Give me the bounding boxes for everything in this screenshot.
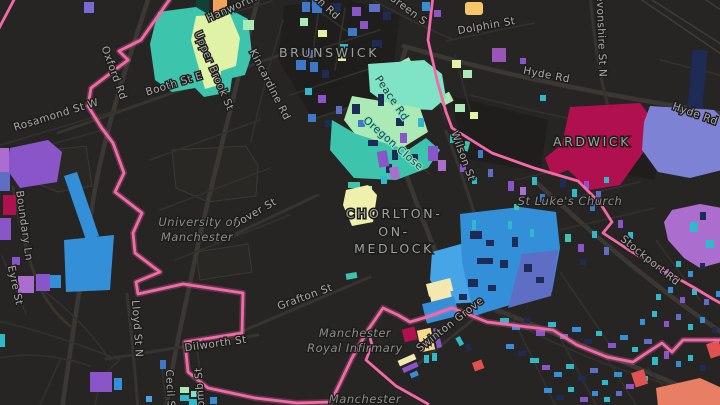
poi-label: St Luke's Church — [518, 194, 623, 208]
place-label: ARDWICK — [553, 134, 631, 149]
map-canvas[interactable]: Oxford RdBooth St ERosamond St WUpper Br… — [0, 0, 720, 405]
poi-label: University of — [158, 215, 239, 229]
place-label: ON- — [378, 224, 410, 239]
poi-label: Royal Infirmary — [307, 341, 403, 355]
poi-label: Manchester — [161, 230, 234, 244]
street-label: Cecil St — [163, 369, 177, 405]
poi-label: Manchester — [319, 326, 392, 340]
place-label: MEDLOCK — [354, 241, 434, 256]
poi-label: Manchester — [329, 392, 402, 405]
place-label: CHORLTON- — [346, 206, 443, 221]
map-viewport[interactable]: Oxford RdBooth St ERosamond St WUpper Br… — [0, 0, 720, 405]
place-label: BRUNSWICK — [279, 45, 379, 60]
